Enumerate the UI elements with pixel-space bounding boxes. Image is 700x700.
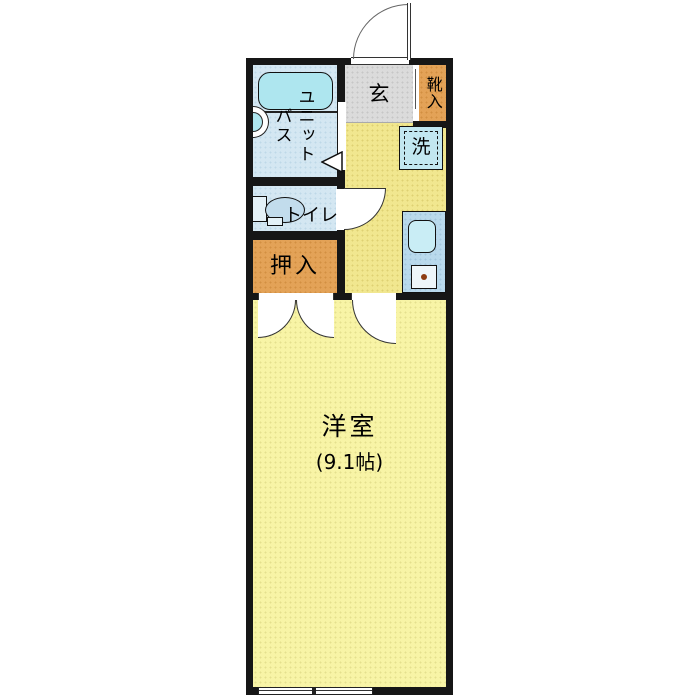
entry-door-swing-arc [353, 4, 409, 59]
unit-bath-label-col1: ユニット [294, 78, 314, 174]
outer-wall-top-left [246, 58, 351, 65]
washer-label: 洗 [399, 126, 443, 170]
outer-wall-right [446, 58, 453, 695]
toilet-seat-box [267, 217, 283, 226]
shoe-box-door-line [415, 69, 416, 109]
kitchen-stove-burner [421, 274, 427, 280]
wall-bath-toilet [246, 177, 345, 186]
outer-wall-left [246, 58, 253, 695]
entrance-label: 玄 [345, 65, 413, 123]
entry-door-leaf [407, 3, 411, 60]
closet-label: 押入 [253, 240, 337, 293]
bath-door-triangle [321, 151, 343, 173]
main-room-label: 洋室 [253, 413, 446, 441]
room-window-latch [312, 688, 316, 694]
toilet-label: トイレ [284, 206, 338, 226]
shoe-box-label: 靴入 [419, 65, 446, 121]
room-door-opening [351, 293, 396, 300]
outer-wall-top-right [408, 58, 453, 65]
wall-toilet-closet [246, 231, 345, 240]
kitchen-sink [408, 220, 436, 253]
unit-bath-label-col2: バス [271, 103, 291, 149]
main-room-size-label: (9.1帖) [253, 449, 446, 475]
closet-door-opening [258, 293, 334, 300]
main-room [253, 300, 446, 687]
